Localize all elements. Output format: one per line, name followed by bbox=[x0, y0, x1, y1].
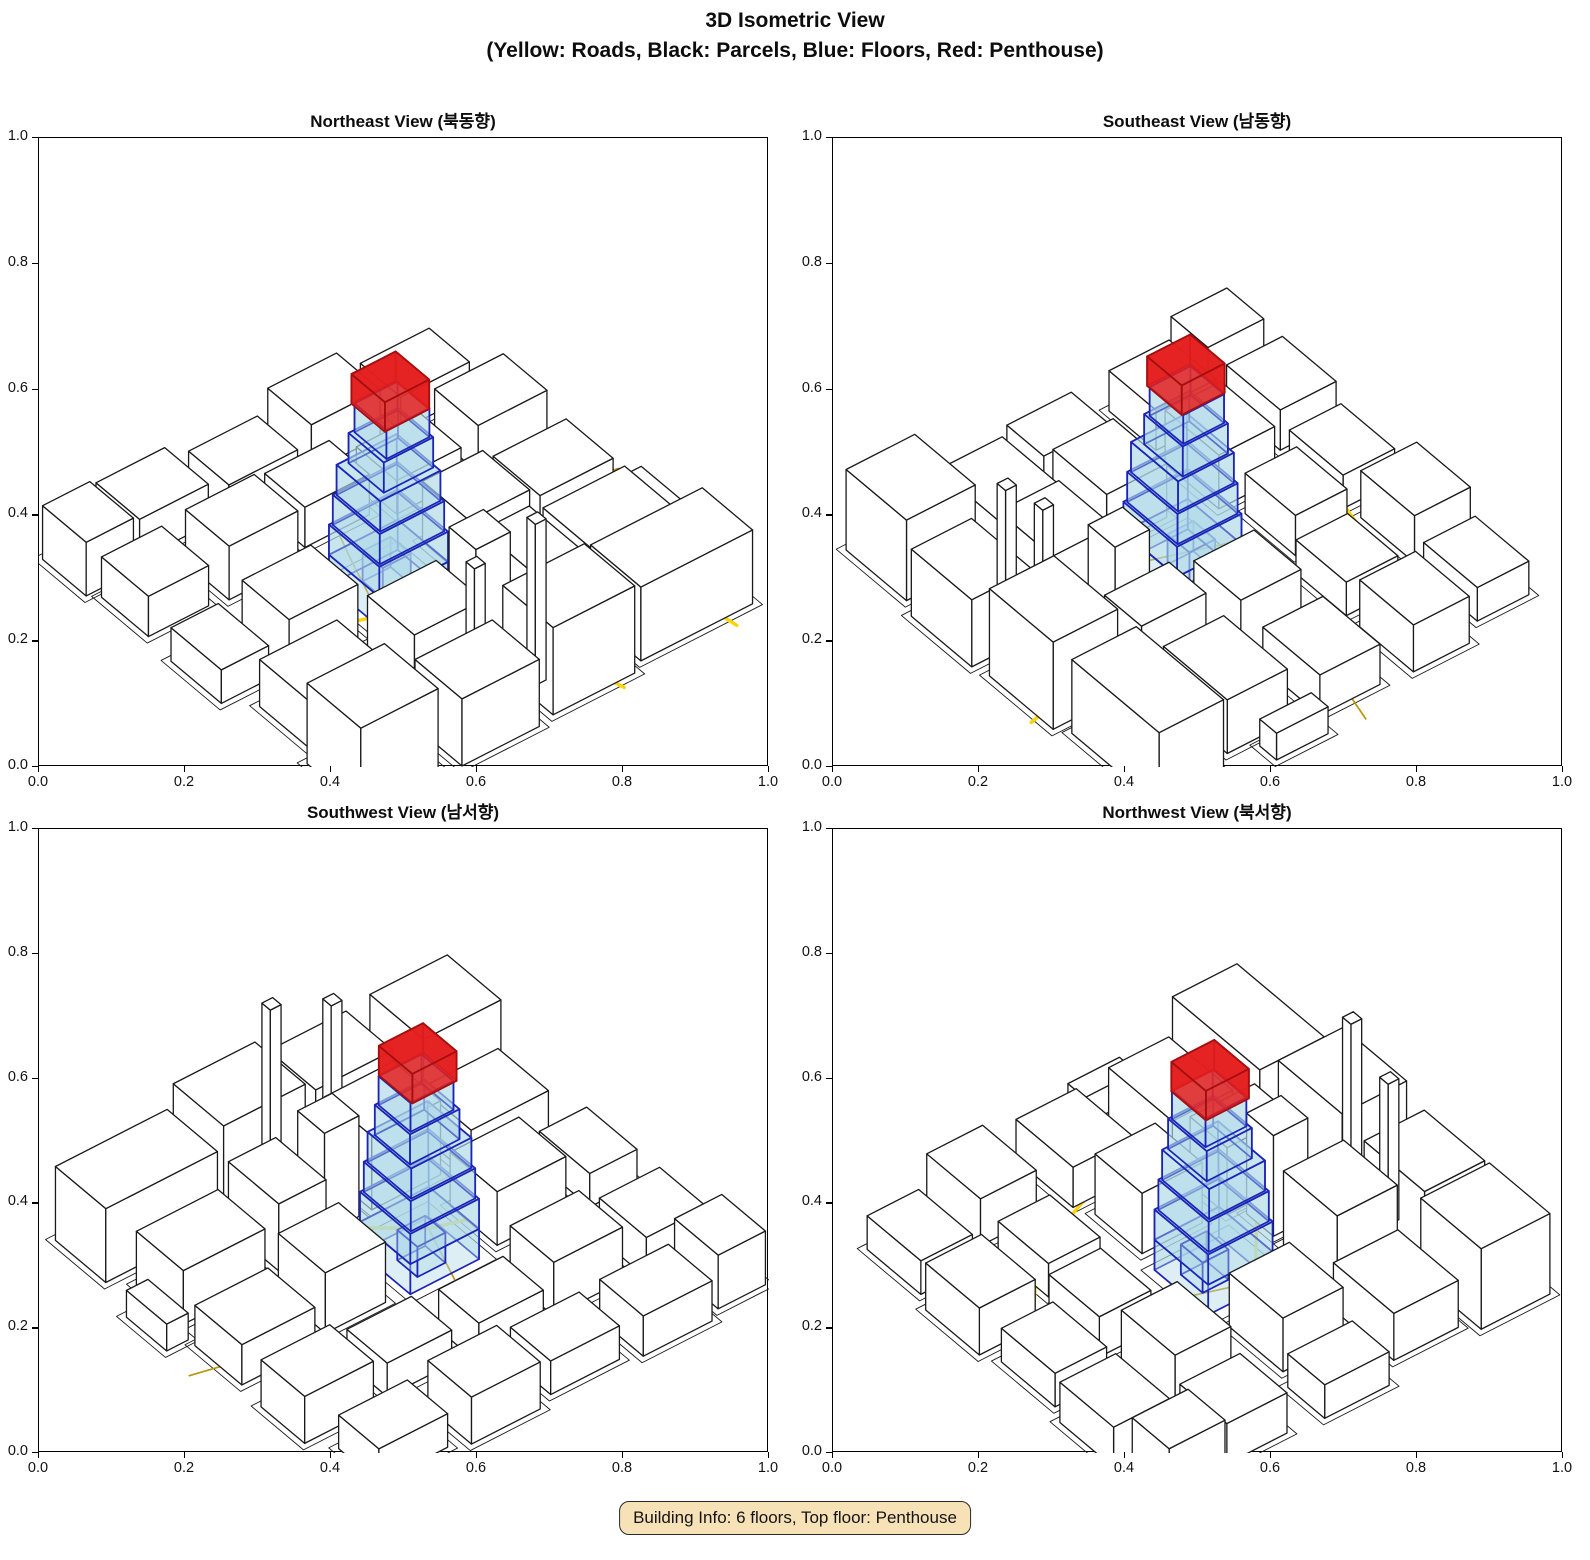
y-tick-mark bbox=[32, 953, 38, 954]
x-tick-label: 1.0 bbox=[1542, 1460, 1582, 1476]
y-tick-label: 0.8 bbox=[788, 944, 822, 960]
figure-title-line2: (Yellow: Roads, Black: Parcels, Blue: Fl… bbox=[0, 36, 1590, 66]
x-tick-label: 0.8 bbox=[1396, 1460, 1436, 1476]
y-tick-mark bbox=[32, 514, 38, 515]
y-tick-label: 0.4 bbox=[788, 1193, 822, 1209]
y-tick-label: 0.6 bbox=[788, 380, 822, 396]
y-tick-label: 0.0 bbox=[0, 757, 28, 773]
x-tick-label: 0.6 bbox=[456, 774, 496, 790]
plot-canvas-southeast bbox=[833, 138, 1563, 767]
y-tick-label: 0.4 bbox=[0, 505, 28, 521]
figure-title-line1: 3D Isometric View bbox=[0, 6, 1590, 36]
y-tick-label: 1.0 bbox=[0, 128, 28, 144]
x-tick-label: 0.4 bbox=[310, 774, 350, 790]
y-tick-label: 1.0 bbox=[0, 819, 28, 835]
subplot-northwest: Northwest View (북서향) 0.00.00.20.20.40.40… bbox=[832, 828, 1562, 1452]
x-tick-mark bbox=[622, 1452, 623, 1458]
plot-area-northwest bbox=[832, 828, 1562, 1452]
x-tick-mark bbox=[1416, 766, 1417, 772]
x-tick-mark bbox=[978, 766, 979, 772]
y-tick-label: 0.8 bbox=[0, 254, 28, 270]
x-tick-label: 1.0 bbox=[748, 1460, 788, 1476]
y-tick-mark bbox=[826, 137, 832, 138]
subplot-northeast: Northeast View (북동향) 0.00.00.20.20.40.40… bbox=[38, 137, 768, 766]
x-tick-mark bbox=[768, 1452, 769, 1458]
x-tick-mark bbox=[330, 1452, 331, 1458]
x-tick-label: 0.0 bbox=[18, 774, 58, 790]
x-tick-mark bbox=[832, 1452, 833, 1458]
y-tick-mark bbox=[826, 953, 832, 954]
building-info-badge: Building Info: 6 floors, Top floor: Pent… bbox=[619, 1501, 971, 1535]
x-tick-mark bbox=[184, 766, 185, 772]
y-tick-mark bbox=[826, 1452, 832, 1453]
y-tick-mark bbox=[32, 1327, 38, 1328]
y-tick-label: 0.8 bbox=[0, 944, 28, 960]
y-tick-mark bbox=[826, 1327, 832, 1328]
x-tick-mark bbox=[1270, 1452, 1271, 1458]
plot-canvas-southwest bbox=[39, 829, 769, 1453]
subplot-title-northwest: Northwest View (북서향) bbox=[832, 798, 1562, 823]
x-tick-mark bbox=[1562, 766, 1563, 772]
subplot-title-southeast: Southeast View (남동향) bbox=[832, 107, 1562, 132]
x-tick-mark bbox=[330, 766, 331, 772]
y-tick-label: 0.4 bbox=[0, 1193, 28, 1209]
x-tick-label: 1.0 bbox=[1542, 774, 1582, 790]
y-tick-label: 0.2 bbox=[788, 1318, 822, 1334]
y-tick-mark bbox=[32, 828, 38, 829]
y-tick-label: 1.0 bbox=[788, 819, 822, 835]
y-tick-label: 0.0 bbox=[788, 1443, 822, 1459]
y-tick-mark bbox=[826, 766, 832, 767]
subplot-title-northeast: Northeast View (북동향) bbox=[38, 107, 768, 132]
y-tick-mark bbox=[826, 640, 832, 641]
y-tick-mark bbox=[826, 1078, 832, 1079]
x-tick-mark bbox=[768, 766, 769, 772]
x-tick-mark bbox=[38, 766, 39, 772]
y-tick-mark bbox=[826, 514, 832, 515]
subplot-southeast: Southeast View (남동향) 0.00.00.20.20.40.40… bbox=[832, 137, 1562, 766]
y-tick-mark bbox=[32, 640, 38, 641]
plot-canvas-northwest bbox=[833, 829, 1563, 1453]
x-tick-mark bbox=[184, 1452, 185, 1458]
x-tick-mark bbox=[1124, 1452, 1125, 1458]
x-tick-label: 0.2 bbox=[164, 1460, 204, 1476]
x-tick-mark bbox=[476, 766, 477, 772]
x-tick-label: 0.2 bbox=[958, 1460, 998, 1476]
x-tick-mark bbox=[1270, 766, 1271, 772]
y-tick-mark bbox=[32, 1452, 38, 1453]
x-tick-mark bbox=[476, 1452, 477, 1458]
x-tick-label: 0.8 bbox=[602, 774, 642, 790]
figure: 3D Isometric View (Yellow: Roads, Black:… bbox=[0, 0, 1590, 1560]
y-tick-mark bbox=[32, 1202, 38, 1203]
y-tick-label: 1.0 bbox=[788, 128, 822, 144]
x-tick-label: 0.4 bbox=[310, 1460, 350, 1476]
figure-title: 3D Isometric View (Yellow: Roads, Black:… bbox=[0, 6, 1590, 67]
x-tick-label: 0.8 bbox=[602, 1460, 642, 1476]
y-tick-label: 0.2 bbox=[0, 631, 28, 647]
y-tick-mark bbox=[826, 263, 832, 264]
y-tick-mark bbox=[32, 766, 38, 767]
x-tick-mark bbox=[1416, 1452, 1417, 1458]
x-tick-mark bbox=[978, 1452, 979, 1458]
x-tick-label: 0.6 bbox=[456, 1460, 496, 1476]
y-tick-mark bbox=[826, 828, 832, 829]
x-tick-mark bbox=[1124, 766, 1125, 772]
y-tick-label: 0.2 bbox=[0, 1318, 28, 1334]
x-tick-label: 0.0 bbox=[812, 774, 852, 790]
y-tick-label: 0.0 bbox=[788, 757, 822, 773]
plot-area-southeast bbox=[832, 137, 1562, 766]
x-tick-mark bbox=[832, 766, 833, 772]
x-tick-label: 0.4 bbox=[1104, 774, 1144, 790]
y-tick-label: 0.4 bbox=[788, 505, 822, 521]
y-tick-label: 0.6 bbox=[0, 380, 28, 396]
plot-area-southwest bbox=[38, 828, 768, 1452]
x-tick-label: 0.6 bbox=[1250, 1460, 1290, 1476]
x-tick-label: 0.2 bbox=[164, 774, 204, 790]
plot-canvas-northeast bbox=[39, 138, 769, 767]
x-tick-mark bbox=[1562, 1452, 1563, 1458]
y-tick-mark bbox=[32, 263, 38, 264]
x-tick-mark bbox=[38, 1452, 39, 1458]
y-tick-label: 0.6 bbox=[788, 1069, 822, 1085]
y-tick-label: 0.2 bbox=[788, 631, 822, 647]
plot-area-northeast bbox=[38, 137, 768, 766]
y-tick-label: 0.8 bbox=[788, 254, 822, 270]
y-tick-mark bbox=[32, 137, 38, 138]
x-tick-label: 0.2 bbox=[958, 774, 998, 790]
subplot-southwest: Southwest View (남서향) 0.00.00.20.20.40.40… bbox=[38, 828, 768, 1452]
x-tick-label: 1.0 bbox=[748, 774, 788, 790]
y-tick-mark bbox=[32, 1078, 38, 1079]
y-tick-label: 0.6 bbox=[0, 1069, 28, 1085]
x-tick-mark bbox=[622, 766, 623, 772]
y-tick-label: 0.0 bbox=[0, 1443, 28, 1459]
x-tick-label: 0.4 bbox=[1104, 1460, 1144, 1476]
y-tick-mark bbox=[32, 389, 38, 390]
x-tick-label: 0.0 bbox=[812, 1460, 852, 1476]
x-tick-label: 0.0 bbox=[18, 1460, 58, 1476]
subplot-title-southwest: Southwest View (남서향) bbox=[38, 798, 768, 823]
y-tick-mark bbox=[826, 389, 832, 390]
x-tick-label: 0.6 bbox=[1250, 774, 1290, 790]
y-tick-mark bbox=[826, 1202, 832, 1203]
x-tick-label: 0.8 bbox=[1396, 774, 1436, 790]
